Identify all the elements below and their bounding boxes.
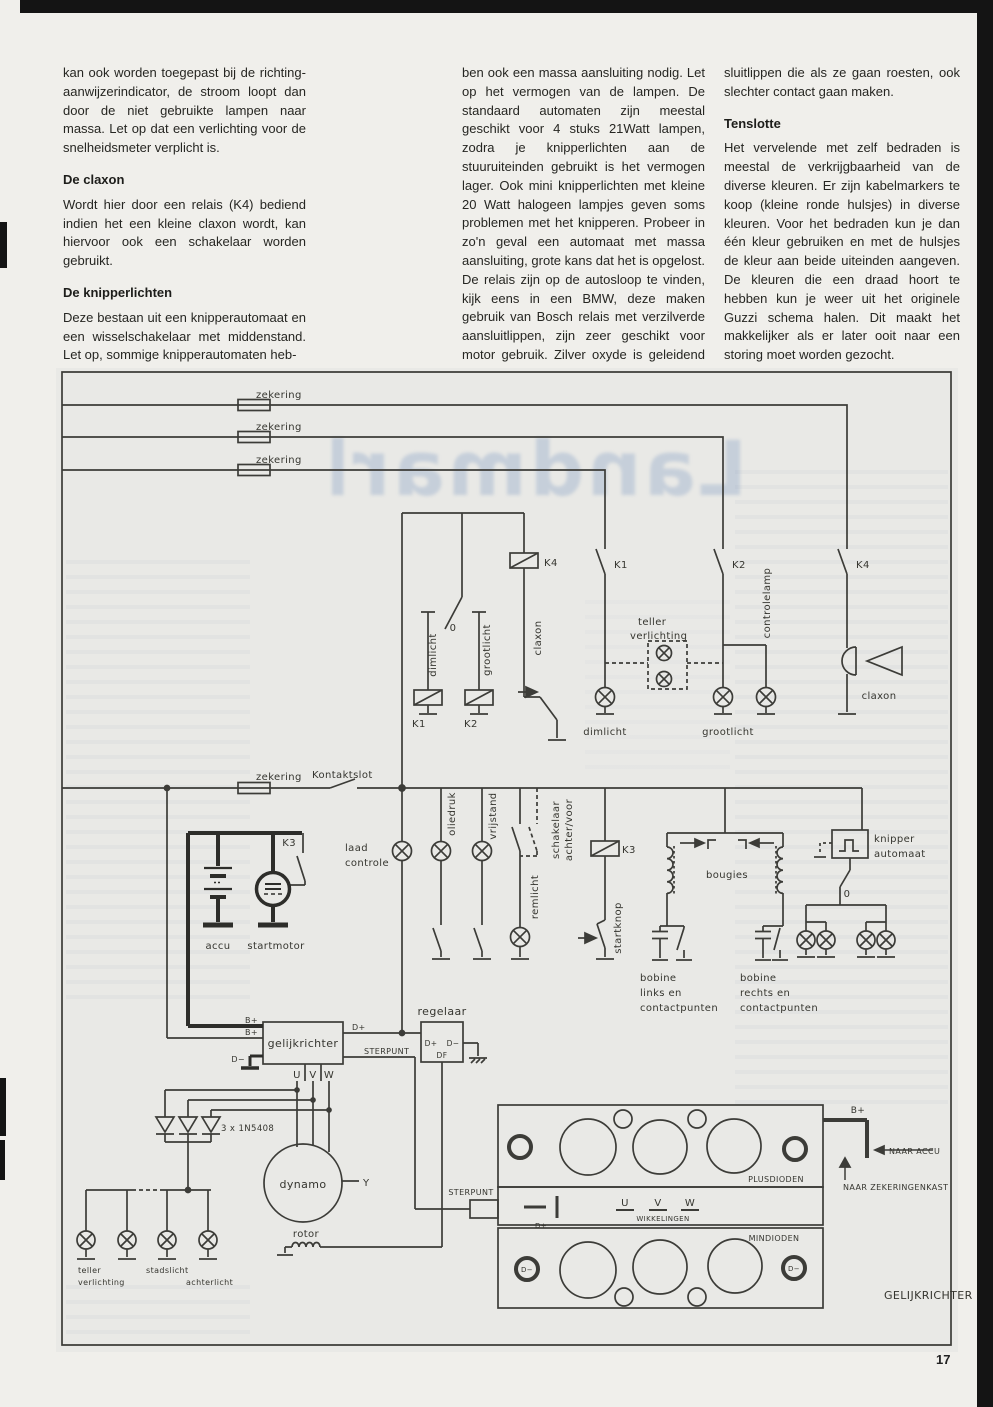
label-zekering-3: zekering [256, 455, 302, 466]
junction-dot [295, 1088, 299, 1092]
label-bplus-out: B+ [851, 1106, 866, 1116]
label-k4-coil: K4 [544, 558, 558, 569]
label-naar-accu: NAAR ACCU [889, 1147, 940, 1156]
label-bobine-r-2: rechts en [740, 988, 790, 999]
label-w-out: W [324, 1070, 334, 1081]
label-startknop: startknop [613, 902, 624, 954]
label-bplus-1: B+ [245, 1016, 258, 1025]
rectifier-block [470, 1105, 823, 1308]
bougies-symbols [680, 839, 774, 849]
relay-contact-k4 [838, 549, 847, 648]
label-oliedruk: oliedruk [447, 792, 458, 836]
label-k2-coil: K2 [464, 719, 478, 730]
bplus-thin-wire [167, 788, 263, 1038]
label-remlicht: remlicht [530, 875, 541, 919]
label-claxon-wire: claxon [533, 621, 544, 656]
label-sterpunt-1: STERPUNT [364, 1047, 409, 1056]
kontaktslot-switch [62, 779, 862, 788]
label-kontaktslot: Kontaktslot [312, 770, 373, 781]
label-startmotor: startmotor [247, 941, 305, 952]
label-mindioden: MINDIODEN [749, 1234, 800, 1243]
remlicht-branch [511, 788, 538, 959]
label-knipper-2: automaat [874, 849, 926, 860]
label-teller-verl-1: teller [638, 617, 667, 628]
relay-coil-k1 [414, 690, 442, 714]
label-dmin-label: D− [231, 1055, 245, 1064]
label-k3-contact: K3 [282, 838, 296, 849]
relay-contact-k2 [714, 549, 723, 687]
label-grootlicht-wire: grootlicht [482, 624, 493, 676]
wiring-schematic: zekeringzekeringzekeringK4K1K2K40dimlich… [0, 0, 993, 1407]
bobine-links-coil [652, 846, 692, 960]
label-bobine-r-1: bobine [740, 973, 776, 984]
claxon-pushbutton [518, 687, 566, 740]
label-v-out: V [309, 1070, 316, 1081]
label-wikkelingen: WIKKELINGEN [636, 1215, 689, 1223]
relay-coil-k4 [510, 513, 540, 697]
label-naar-zekeringenkast: NAAR ZEKERINGENKAST [843, 1183, 948, 1192]
label-bobine-l-1: bobine [640, 973, 676, 984]
rotor-symbol [277, 1243, 320, 1256]
verlichting-lamp-row [77, 1190, 217, 1259]
label-diodes: 3 x 1N5408 [221, 1124, 274, 1134]
label-vrijstand: vrijstand [488, 792, 499, 839]
label-k1-coil: K1 [412, 719, 426, 730]
label-laad-1: laad [345, 843, 368, 854]
label-lamp-teller-1: teller [78, 1266, 101, 1275]
label-gelijkrichter-big: GELIJKRICHTER [884, 1289, 973, 1302]
headlight-selector-switch [402, 513, 524, 786]
label-selector-zero: 0 [450, 623, 457, 634]
magazine-page: { "page": { "number": "17", "ghost_title… [0, 0, 993, 1407]
label-gelijkrichter-box: gelijkrichter [268, 1037, 339, 1050]
bobine-feed [667, 788, 783, 847]
diagram-frame [62, 372, 951, 1345]
label-reg-df: DF [437, 1051, 448, 1060]
label-bobine-l-3: contactpunten [640, 1003, 718, 1014]
page-number: 17 [936, 1352, 950, 1367]
label-strip-v: V [654, 1198, 661, 1209]
knipperautomaat-box [814, 788, 868, 858]
label-bobine-l-2: links en [640, 988, 682, 999]
label-sterpunt-2: STERPUNT [448, 1188, 493, 1197]
label-schakelaar-1: schakelaar [551, 801, 562, 859]
label-dmin-ring-l: D− [521, 1266, 533, 1274]
label-u-out: U [293, 1070, 301, 1081]
label-regelaar: regelaar [417, 1005, 466, 1018]
diode-symbols [156, 1117, 220, 1190]
junction-dot [311, 1098, 315, 1102]
label-achterlicht: achterlicht [186, 1278, 233, 1287]
relay-coil-k2 [465, 690, 493, 714]
label-k2-contact: K2 [732, 560, 746, 571]
label-bplus-2: B+ [245, 1028, 258, 1037]
label-y-terminal: Y [362, 1178, 370, 1189]
laadcontrole-lamp-symbol [393, 788, 412, 1033]
fuse-lines [62, 405, 847, 549]
label-reg-dmin: D− [447, 1039, 460, 1048]
label-k4-contact: K4 [856, 560, 870, 571]
label-laad-2: controle [345, 858, 389, 869]
label-strip-w: W [685, 1198, 695, 1209]
label-plusdioden: PLUSDIODEN [748, 1175, 804, 1184]
label-dimlicht-wire: dimlicht [428, 633, 439, 676]
label-zekering-1: zekering [256, 390, 302, 401]
label-bobine-r-3: contactpunten [740, 1003, 818, 1014]
label-dplus-out: D+ [352, 1023, 366, 1032]
label-zekering-4: zekering [256, 772, 302, 783]
teller-verlichting-lamps [605, 641, 723, 689]
label-bougies: bougies [706, 870, 748, 881]
label-rotor: rotor [293, 1229, 320, 1240]
label-teller-verl-2: verlichting [630, 631, 687, 642]
relay-contact-k1 [596, 549, 605, 687]
label-accu: accu [205, 941, 230, 952]
label-k1-contact: K1 [614, 560, 628, 571]
claxon-horn-symbol [838, 647, 902, 714]
label-k3-coil: K3 [622, 845, 636, 856]
label-reg-dplus: D+ [425, 1039, 438, 1048]
label-claxon-horn: claxon [862, 691, 897, 702]
junction-dot [327, 1108, 331, 1112]
label-strip-dplus: D+ [535, 1222, 547, 1230]
label-dmin-ring-r: D− [788, 1265, 800, 1273]
startknop-symbol [578, 933, 596, 943]
knipperlicht-lamp-symbols [797, 931, 895, 957]
label-controlelamp: controlelamp [762, 568, 773, 639]
label-grootlicht-lamp: grootlicht [702, 727, 754, 738]
label-zekering-2: zekering [256, 422, 302, 433]
junction-dot [400, 1031, 405, 1036]
label-stadslicht: stadslicht [146, 1266, 189, 1275]
label-knipper-1: knipper [874, 834, 915, 845]
bobine-rechts-coil [755, 846, 788, 960]
label-lamp-teller-2: verlichting [78, 1278, 125, 1287]
grootlicht-lamp-symbol [714, 688, 733, 715]
label-dimlicht-lamp: dimlicht [583, 727, 626, 738]
dimlicht-lamp-symbol [596, 688, 615, 715]
teller-lamp-symbols [657, 646, 672, 687]
label-knipper-zero: 0 [844, 889, 851, 900]
label-schakelaar-2: achter/voor [564, 798, 575, 861]
label-strip-u: U [621, 1198, 629, 1209]
label-dynamo: dynamo [279, 1178, 326, 1191]
scanned-page: kan ook worden toegepast bij de richting… [0, 0, 993, 1407]
